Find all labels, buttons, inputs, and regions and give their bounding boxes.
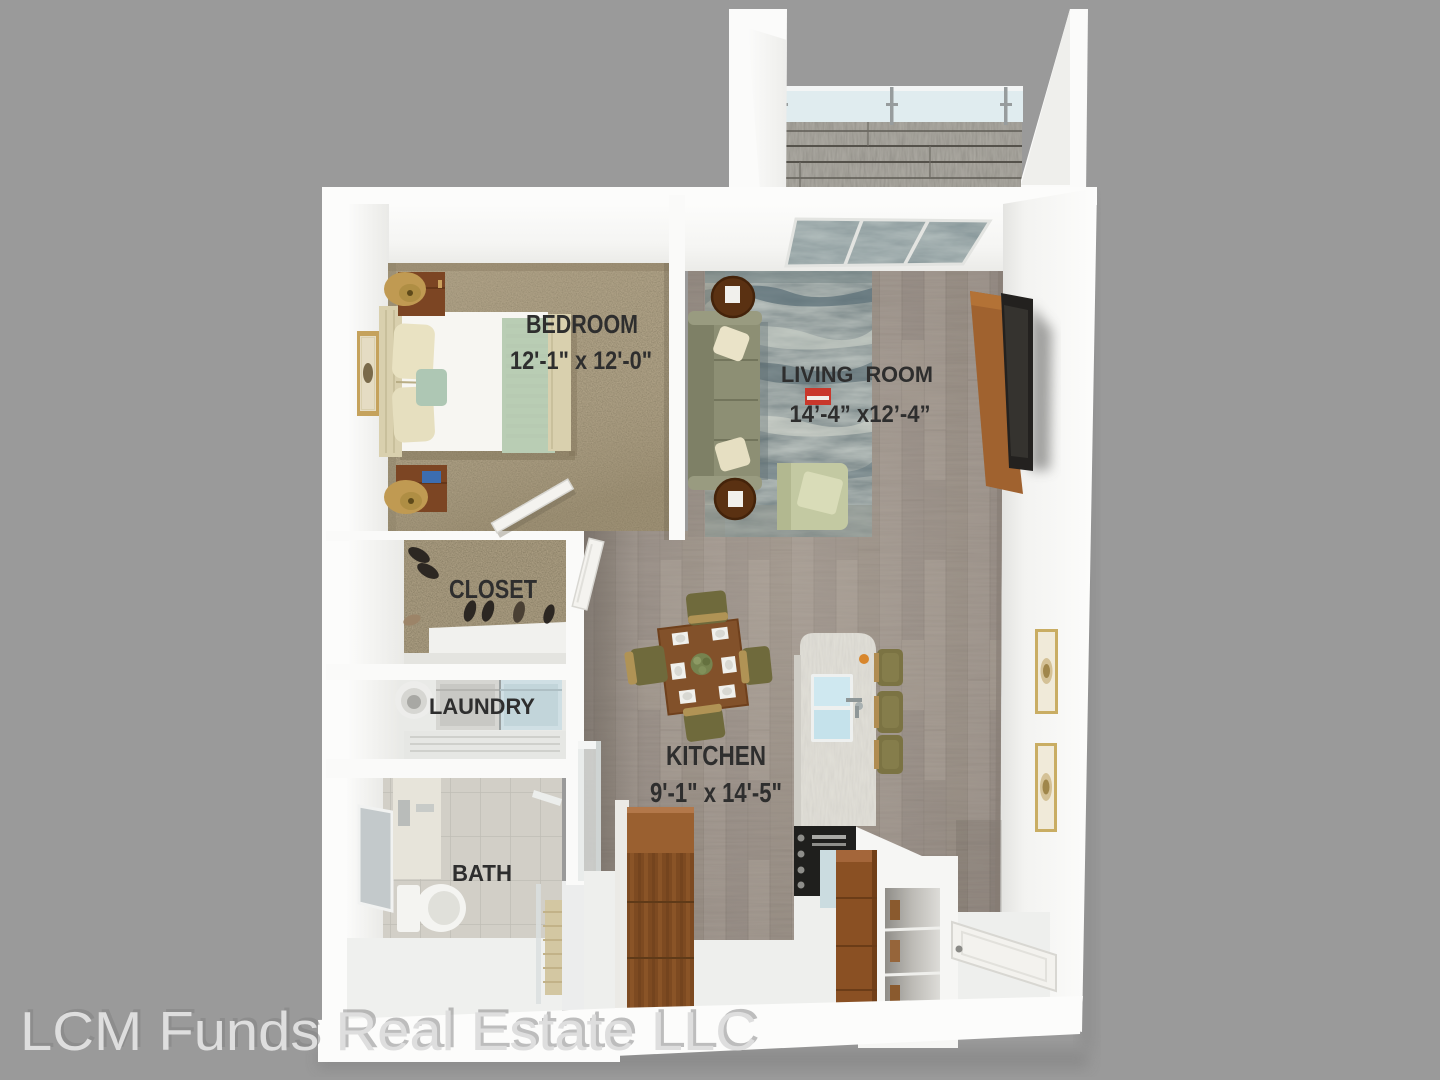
svg-text:LIVING ROOM: LIVING ROOM [781, 362, 933, 387]
svg-text:CLOSET: CLOSET [449, 574, 537, 604]
svg-text:LCM Funds Real Estate LLC: LCM Funds Real Estate LLC [20, 1000, 757, 1062]
svg-text:14’-4” x12’-4”: 14’-4” x12’-4” [790, 401, 931, 428]
svg-text:KITCHEN: KITCHEN [666, 740, 766, 771]
svg-text:BATH: BATH [452, 860, 512, 886]
svg-text:12'-1" x 12'-0": 12'-1" x 12'-0" [510, 347, 652, 375]
svg-text:BEDROOM: BEDROOM [526, 309, 638, 339]
svg-text:LAUNDRY: LAUNDRY [429, 694, 535, 719]
svg-text:9'-1" x 14'-5": 9'-1" x 14'-5" [650, 777, 782, 808]
